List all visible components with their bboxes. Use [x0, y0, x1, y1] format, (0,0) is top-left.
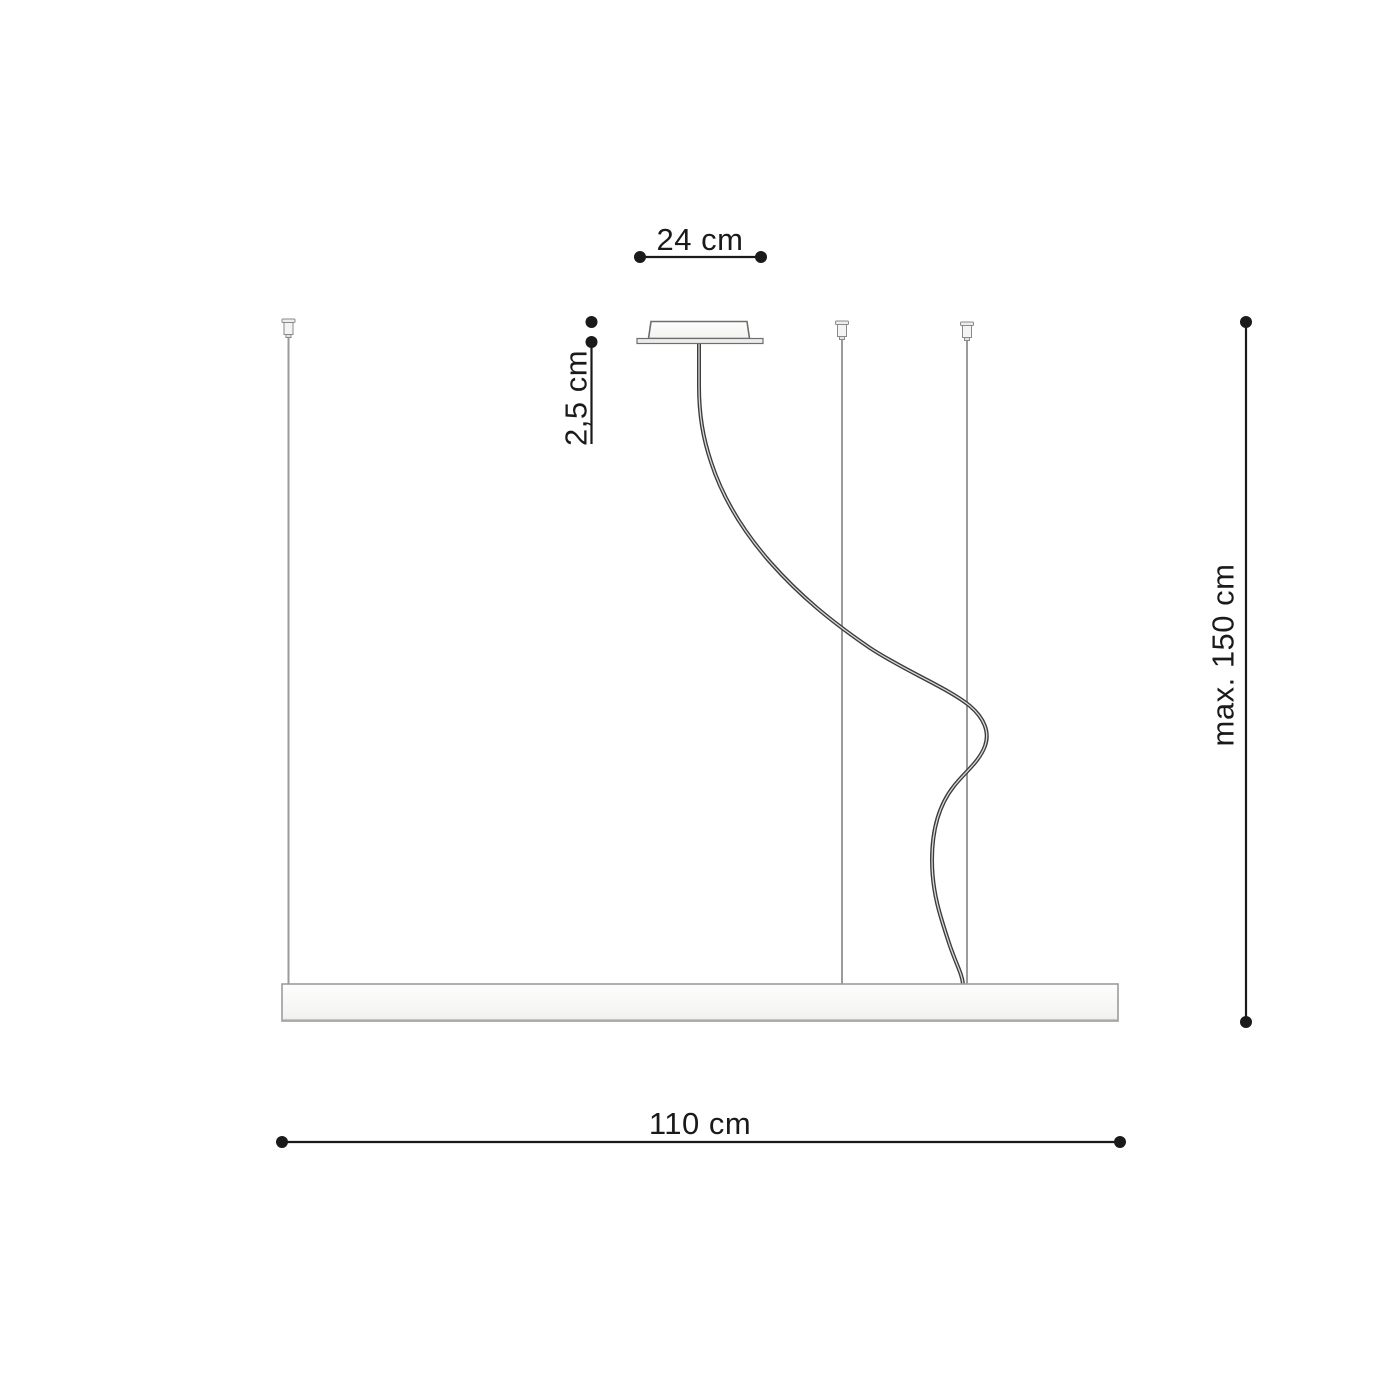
canopy-flange: [637, 339, 763, 344]
lamp-bar: [282, 984, 1118, 1021]
fixture-length-label: 110 cm: [649, 1108, 751, 1139]
canopy-height-label: 2,5 cm: [561, 350, 592, 446]
wire-connector-left: [282, 319, 295, 338]
diagram-canvas: 24 cm 2,5 cm max. 150 cm 110 cm: [0, 0, 1400, 1400]
wire-connector-middle: [836, 321, 849, 340]
ceiling-canopy: [637, 322, 763, 344]
dimension-max-height: [1240, 316, 1252, 1028]
lamp-diagram-drawing: [0, 0, 1400, 1400]
canopy-body: [649, 322, 750, 339]
wire-connector-right: [961, 322, 974, 341]
max-height-label: max. 150 cm: [1208, 564, 1239, 747]
suspension-wires: [289, 337, 968, 984]
canopy-width-label: 24 cm: [657, 224, 744, 255]
